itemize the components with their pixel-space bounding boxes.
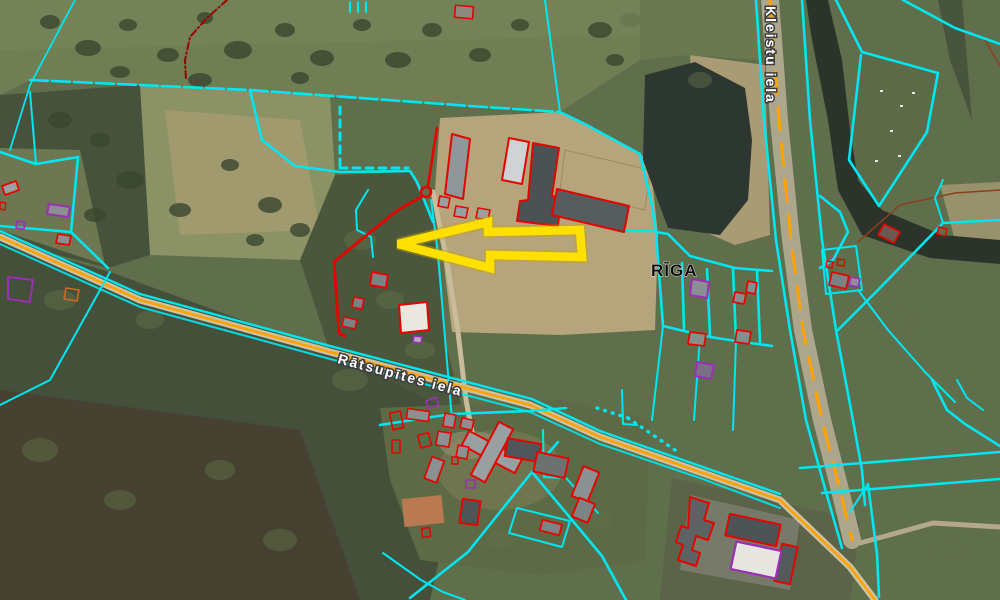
street-label-kleistu: Kleistu iela [763,6,779,104]
map-canvas[interactable]: RĪGA Rātsupītes iela Kleistu iela [0,0,1000,600]
city-label: RĪGA [651,261,698,280]
map-viewport[interactable]: RĪGA Rātsupītes iela Kleistu iela [0,0,1000,600]
